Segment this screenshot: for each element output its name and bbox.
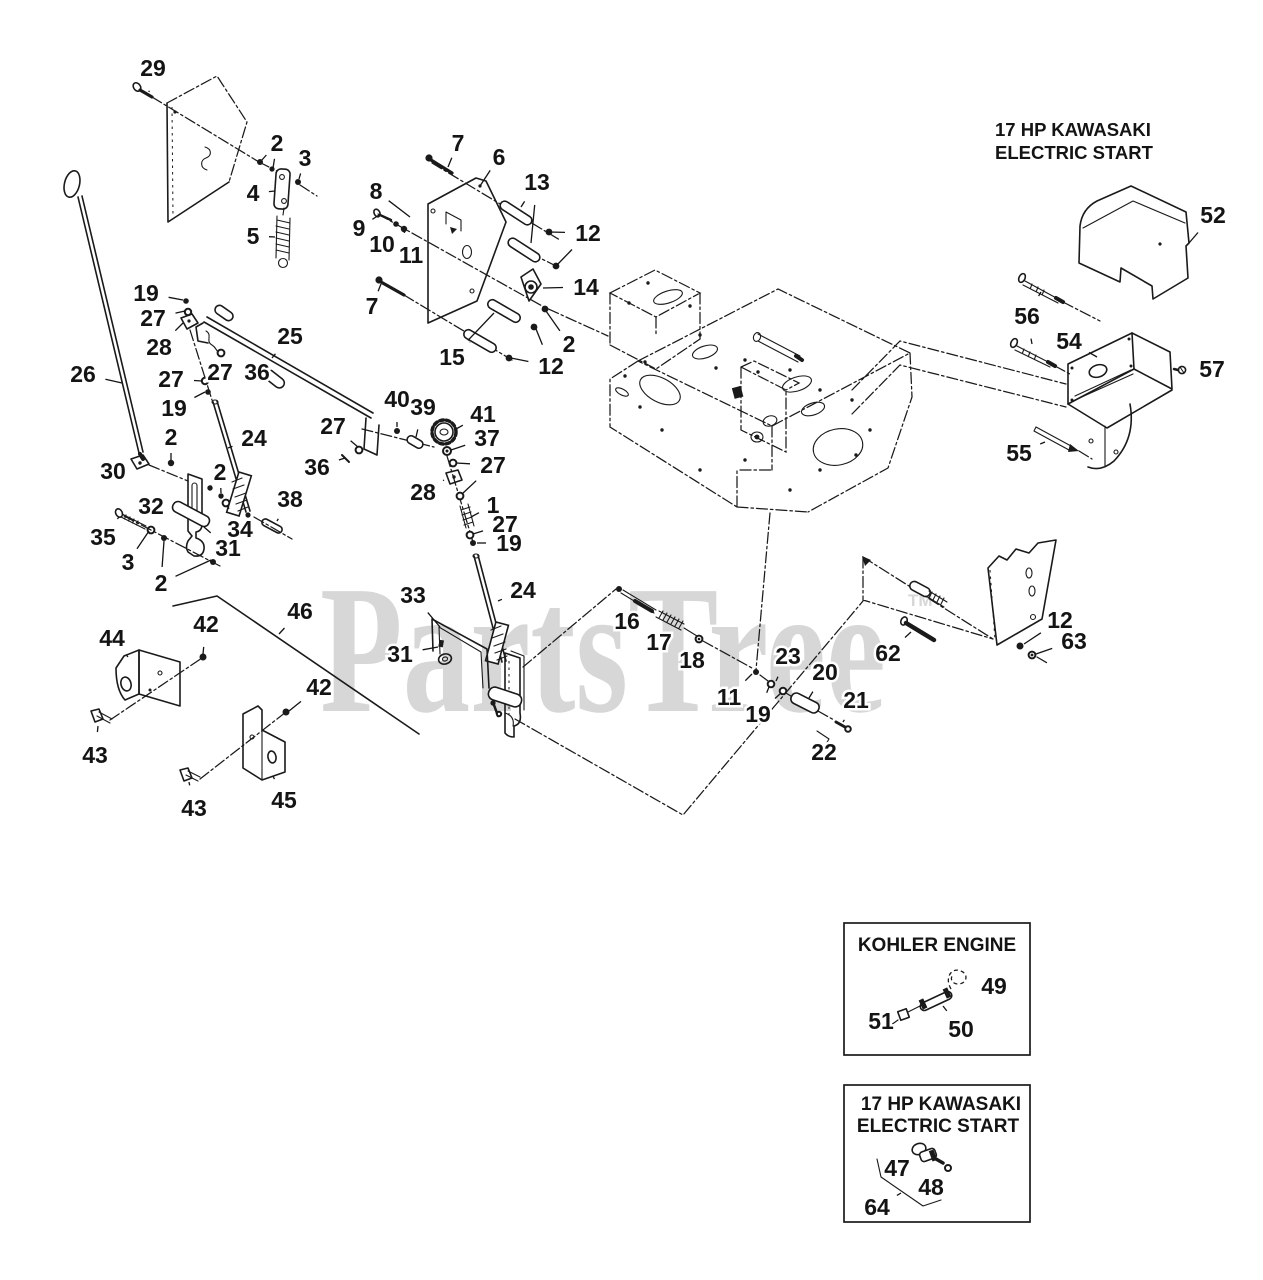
part-number-label: 19: [496, 530, 522, 556]
leader-line: [1040, 442, 1045, 444]
part-number-label: 19: [133, 280, 159, 306]
spring-5: [276, 208, 290, 268]
part-number-label: 20: [812, 659, 838, 685]
part-number-label: 48: [918, 1174, 944, 1200]
part-number-label: 43: [181, 795, 207, 821]
leader-line: [261, 155, 266, 161]
leader-line: [456, 463, 470, 464]
leader-line: [471, 513, 479, 517]
leader-line: [299, 173, 301, 179]
leader-line: [389, 201, 410, 217]
part-number-label: 27: [140, 305, 166, 331]
part-number-label: 26: [70, 361, 96, 387]
leader-line: [556, 250, 572, 267]
leader-line: [1036, 648, 1052, 654]
part-number-label: 27: [320, 413, 346, 439]
part-number-label: 12: [538, 353, 564, 379]
part-number-label: 4: [247, 180, 260, 206]
part-number-label: 3: [122, 549, 135, 575]
leader-line: [127, 656, 128, 657]
leader-line: [546, 311, 560, 331]
part-number-label: 2: [271, 130, 284, 156]
leader-line: [97, 726, 98, 732]
leader-line: [203, 647, 204, 654]
part-number-label: 11: [399, 242, 424, 268]
part-number-label: 5: [247, 223, 260, 249]
leader-line: [351, 441, 358, 447]
part-number-label: 30: [100, 458, 126, 484]
part-number-label: 8: [370, 178, 383, 204]
part-number-label: 33: [400, 582, 426, 608]
part-number-label: 17: [646, 629, 672, 655]
part-number-label: 6: [493, 144, 506, 170]
part-number-label: 2: [214, 459, 227, 485]
part-number-label: 7: [452, 130, 465, 156]
part-number-label: 31: [387, 641, 413, 667]
engine-note-line2: ELECTRIC START: [995, 142, 1154, 163]
parts-diagram-page: PartsTree TM: [0, 0, 1263, 1280]
leader-line: [543, 288, 563, 289]
part-number-label: 52: [1200, 202, 1226, 228]
part-number-label: 2: [563, 331, 576, 357]
leader-line: [273, 159, 275, 168]
part-number-label: 39: [410, 394, 436, 420]
leader-line: [194, 392, 205, 398]
leader-line: [105, 379, 122, 383]
callout-layer: 2923457613891011121471521219272825273627…: [70, 55, 1226, 1220]
kohler-box-title: KOHLER ENGINE: [858, 935, 1016, 956]
part-number-label: 36: [244, 359, 270, 385]
part-number-label: 63: [1061, 628, 1087, 654]
side-panel: [988, 540, 1056, 645]
part-number-label: 18: [679, 647, 705, 673]
part-number-label: 25: [277, 323, 303, 349]
part-number-label: 28: [146, 334, 172, 360]
part-number-label: 49: [981, 973, 1007, 999]
leader-line: [176, 311, 186, 313]
part-number-label: 45: [271, 787, 297, 813]
part-number-label: 36: [304, 454, 330, 480]
part-number-label: 62: [875, 640, 901, 666]
leader-line: [1189, 233, 1198, 244]
screw-43-right: [180, 768, 200, 781]
part-number-label: 22: [811, 739, 837, 765]
leader-line: [339, 458, 345, 460]
leader-line: [289, 701, 301, 711]
engine-note: 17 HP KAWASAKI ELECTRIC START: [995, 119, 1154, 163]
kawasaki-box-title-line2: ELECTRIC START: [857, 1116, 1020, 1137]
pin-13b: [506, 236, 541, 263]
part-number-label: 64: [864, 1194, 890, 1220]
part-number-label: 9: [353, 215, 366, 241]
part-number-label: 23: [775, 643, 801, 669]
screw-35: [114, 508, 124, 519]
leader-line: [443, 480, 444, 481]
part-number-label: 29: [140, 55, 166, 81]
part-number-label: 54: [1056, 328, 1082, 354]
leader-line: [511, 358, 528, 362]
screw-43-left: [91, 709, 112, 723]
part-number-label: 41: [470, 401, 496, 427]
part-number-label: 21: [843, 687, 869, 713]
leader-line: [204, 527, 211, 533]
leader-line: [169, 297, 183, 300]
part-number-label: 40: [384, 386, 410, 412]
part-number-label: 15: [439, 344, 465, 370]
leader-line: [536, 329, 542, 345]
part-number-label: 7: [366, 293, 379, 319]
washer-10: [393, 221, 399, 227]
part-number-label: 2: [155, 570, 168, 596]
part-number-label: 43: [82, 742, 108, 768]
part-number-label: 24: [510, 577, 536, 603]
rod-26: [78, 196, 143, 453]
engine-note-line1: 17 HP KAWASAKI: [995, 119, 1151, 140]
leader-line: [1089, 352, 1097, 357]
part-number-label: 35: [90, 524, 116, 550]
leader-line: [176, 560, 212, 576]
part-number-label: 27: [207, 359, 233, 385]
frame-bolt-holes: [623, 281, 871, 491]
part-number-label: 28: [410, 479, 436, 505]
pin-32: [171, 500, 211, 528]
leader-line: [456, 425, 463, 429]
pin-13a: [498, 199, 533, 226]
part-number-label: 19: [745, 701, 771, 727]
pin-15a: [486, 298, 522, 324]
part-number-label: 42: [193, 611, 219, 637]
leader-line: [194, 381, 202, 382]
part-number-label: 10: [369, 231, 395, 257]
top-left-panel-assembly: [132, 76, 317, 268]
leader-line: [521, 201, 525, 207]
part-number-label: 31: [215, 535, 241, 561]
part-number-label: 27: [480, 452, 506, 478]
leader-line: [1031, 339, 1032, 344]
part-number-label: 3: [299, 145, 312, 171]
part-number-label: 13: [524, 169, 550, 195]
leader-line: [175, 323, 183, 331]
leader-line: [448, 158, 452, 167]
leader-line: [1024, 633, 1041, 644]
rod-26-handle: [61, 169, 82, 199]
leader-line: [189, 782, 190, 785]
part-number-label: 16: [614, 608, 640, 634]
part-number-label: 37: [474, 425, 500, 451]
part-number-label: 11: [717, 684, 742, 710]
part-number-label: 19: [161, 395, 187, 421]
ring-48: [945, 1165, 951, 1171]
leader-line: [404, 231, 405, 233]
part-number-label: 14: [573, 274, 599, 300]
leader-line: [279, 628, 285, 634]
leader-line: [117, 517, 119, 519]
leader-line: [378, 284, 381, 291]
leader-line: [277, 519, 278, 521]
leader-line: [462, 481, 476, 494]
kawasaki-box-title-line1: 17 HP KAWASAKI: [861, 1094, 1021, 1115]
part-number-label: 2: [165, 424, 178, 450]
part-number-label: 55: [1006, 440, 1032, 466]
part-number-label: 38: [277, 486, 303, 512]
leader-line: [905, 632, 911, 638]
part-number-label: 27: [158, 366, 184, 392]
part-number-label: 51: [868, 1008, 894, 1034]
pin-15b: [462, 328, 498, 354]
leader-line: [416, 429, 418, 437]
screw-62: [906, 623, 934, 640]
leader-line: [269, 191, 275, 192]
part-number-label: 56: [1014, 303, 1040, 329]
cover-52: [1079, 186, 1189, 299]
part-number-label: 32: [138, 493, 164, 519]
screw-57: [1174, 366, 1186, 373]
part-number-label: 50: [948, 1016, 974, 1042]
leader-line: [451, 445, 465, 450]
part-number-label: 42: [306, 674, 332, 700]
leader-line: [480, 170, 490, 186]
part-number-label: 57: [1199, 356, 1225, 382]
parts-diagram: PartsTree TM: [0, 0, 1263, 1280]
part-number-label: 24: [241, 425, 267, 451]
part-number-label: 44: [99, 625, 125, 651]
leader-line: [162, 541, 164, 567]
leader-line: [473, 531, 483, 534]
part-number-label: 46: [287, 598, 313, 624]
bracket-44: [116, 650, 180, 706]
part-number-label: 12: [575, 220, 601, 246]
leader-line: [137, 531, 149, 549]
part-number-label: 47: [884, 1155, 910, 1181]
pin-39: [406, 434, 425, 449]
nut-40: [394, 428, 400, 434]
